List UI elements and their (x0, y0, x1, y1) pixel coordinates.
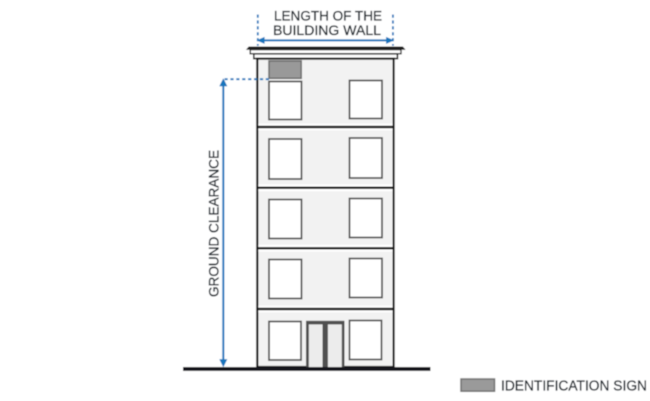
svg-text:BUILDING WALL: BUILDING WALL (273, 22, 381, 38)
svg-text:GROUND CLEARANCE: GROUND CLEARANCE (205, 150, 221, 297)
svg-text:IDENTIFICATION SIGN: IDENTIFICATION SIGN (501, 379, 647, 395)
